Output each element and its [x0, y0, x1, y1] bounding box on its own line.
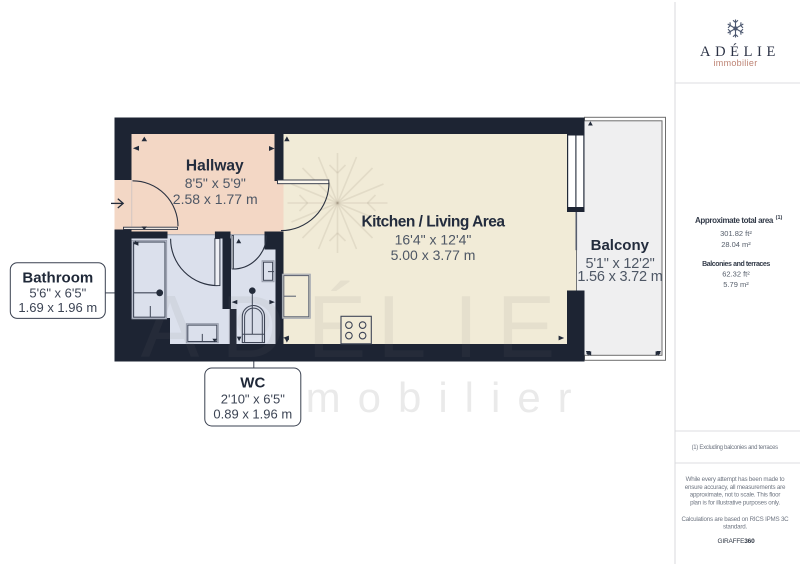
svg-text:2.58 x 1.77 m: 2.58 x 1.77 m	[173, 191, 258, 207]
svg-text:301.82 ft²: 301.82 ft²	[720, 229, 752, 238]
svg-text:5.79 m²: 5.79 m²	[723, 280, 749, 289]
svg-text:standard.: standard.	[723, 523, 747, 530]
svg-text:Approximate total area: Approximate total area	[695, 216, 774, 225]
svg-text:(1): (1)	[776, 215, 783, 221]
svg-text:1.69 x 1.96 m: 1.69 x 1.96 m	[18, 300, 97, 315]
svg-text:Bathroom: Bathroom	[22, 270, 93, 287]
svg-text:approximate, not to scale. Thi: approximate, not to scale. This floor	[690, 492, 781, 499]
svg-text:GIRAFFE360: GIRAFFE360	[717, 538, 755, 545]
svg-text:immobilier: immobilier	[713, 58, 757, 68]
svg-text:I: I	[454, 277, 478, 376]
svg-text:5'6" x 6'5": 5'6" x 6'5"	[29, 286, 86, 301]
svg-text:62.32 ft²: 62.32 ft²	[722, 269, 750, 278]
svg-text:5.00 x 3.77 m: 5.00 x 3.77 m	[391, 247, 476, 263]
svg-text:E: E	[497, 277, 556, 376]
svg-text:Hallway: Hallway	[186, 158, 244, 175]
svg-text:Balconies and terraces: Balconies and terraces	[702, 261, 770, 268]
svg-text:L: L	[378, 277, 427, 376]
svg-text:2'10" x 6'5": 2'10" x 6'5"	[221, 392, 285, 407]
svg-text:While every attempt has been m: While every attempt has been made to	[686, 476, 785, 483]
svg-text:1.56 x 3.72 m: 1.56 x 3.72 m	[577, 269, 662, 285]
svg-text:ensure accuracy, all measureme: ensure accuracy, all measurements are	[685, 484, 786, 491]
svg-text:plan is for illustrative purpo: plan is for illustrative purposes only.	[690, 499, 780, 506]
svg-text:Calculations are based on RICS: Calculations are based on RICS IPMS 3C	[682, 516, 790, 523]
svg-text:8'5" x 5'9": 8'5" x 5'9"	[185, 175, 246, 191]
svg-text:28.04 m²: 28.04 m²	[721, 240, 751, 249]
svg-text:Kitchen / Living Area: Kitchen / Living Area	[361, 213, 505, 230]
svg-text:Balcony: Balcony	[591, 237, 650, 254]
svg-text:16'4" x 12'4": 16'4" x 12'4"	[395, 232, 472, 248]
svg-text:0.89 x 1.96 m: 0.89 x 1.96 m	[213, 407, 292, 422]
svg-text:(1) Excluding balconies and te: (1) Excluding balconies and terraces	[692, 445, 779, 451]
svg-text:WC: WC	[240, 375, 265, 392]
